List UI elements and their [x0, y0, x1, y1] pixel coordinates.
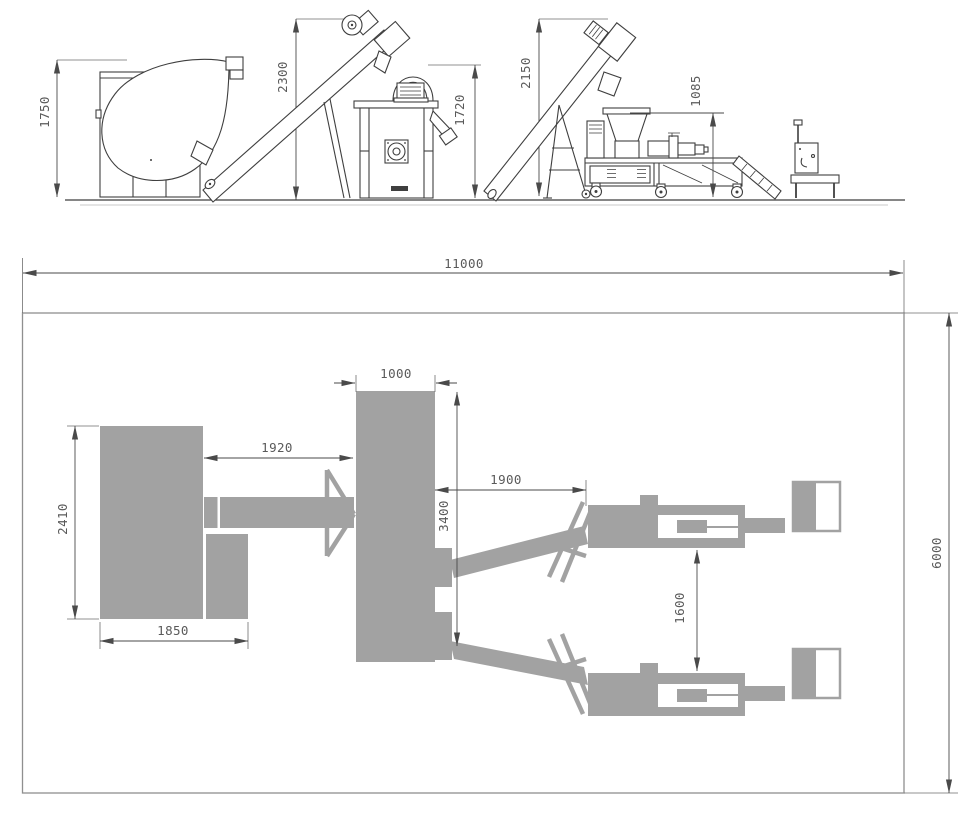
svg-text:2410: 2410: [55, 503, 70, 535]
mixer-motor: [226, 57, 243, 70]
extruder-motor: [587, 121, 604, 158]
svg-text:1920: 1920: [261, 440, 293, 455]
svg-text:11000: 11000: [444, 256, 484, 271]
svg-text:1600: 1600: [672, 592, 687, 624]
line1-outfeed: [745, 518, 785, 533]
dimension-overall-width: 6000: [929, 313, 949, 793]
svg-text:1720: 1720: [452, 94, 467, 126]
dimension-cabinet-height: 1720: [428, 65, 481, 198]
plan-view: 11000 6000 1000 1920 2410 1850: [23, 256, 959, 793]
line2-outfeed: [745, 686, 785, 701]
sewing-station: [791, 120, 839, 198]
extruder-barrel: [648, 141, 670, 156]
svg-text:1000: 1000: [380, 366, 412, 381]
sewing-machine: [795, 143, 818, 173]
svg-text:3400: 3400: [436, 500, 451, 532]
cabinet-elevation: [354, 77, 457, 198]
elevation-view: 1750 2300 1720 2150: [37, 10, 905, 205]
sewing-table: [791, 175, 839, 183]
svg-text:1750: 1750: [37, 96, 52, 128]
drawing-canvas: 1750 2300 1720 2150: [0, 0, 980, 821]
machinery-layout-drawing: 1750 2300 1720 2150: [0, 0, 980, 821]
svg-text:1850: 1850: [157, 623, 189, 638]
feed-hopper: [607, 114, 647, 141]
svg-text:6000: 6000: [929, 537, 944, 569]
svg-text:2150: 2150: [518, 57, 533, 89]
feed-conveyor-footprint: [204, 497, 354, 528]
svg-text:2300: 2300: [275, 61, 290, 93]
dimension-overall-length: 11000: [23, 256, 903, 273]
extruder-elevation: [585, 108, 743, 198]
svg-text:1085: 1085: [688, 75, 703, 107]
svg-text:1900: 1900: [490, 472, 522, 487]
nameplate: [391, 186, 408, 191]
die-head: [695, 145, 704, 154]
